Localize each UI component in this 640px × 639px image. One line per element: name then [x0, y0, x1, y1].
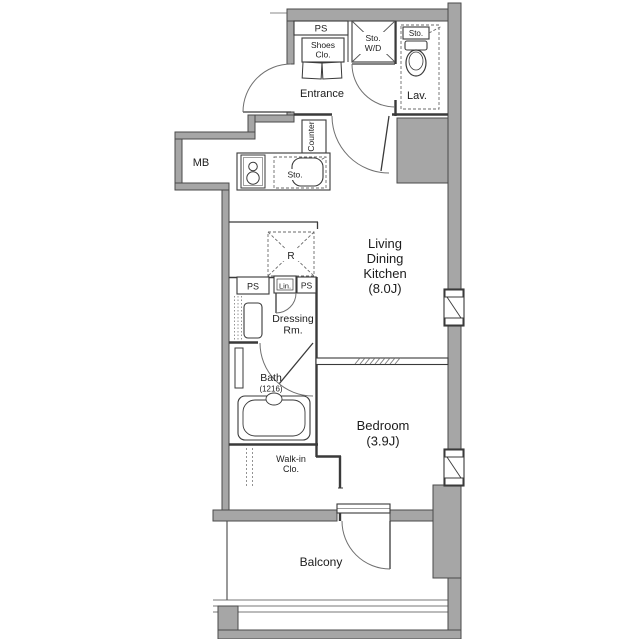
room-label-bath: Bath: [260, 372, 282, 384]
floor-plan-canvas: PS Shoes Clo. Sto. W/D Entrance Sto. Lav…: [0, 0, 640, 639]
storage-lavatory-label: Sto.: [409, 29, 423, 38]
balcony-column: [218, 606, 238, 632]
pipe-space-left-label: PS: [247, 282, 259, 292]
room-label-walkin: Clo.: [283, 464, 299, 474]
pipe-space-top-label: PS: [315, 24, 328, 35]
wall-balcony-band-left: [213, 510, 337, 521]
wall-right-mid: [448, 325, 461, 450]
kitchen-counter-label: Counter: [306, 121, 316, 151]
room-label-lavatory: Lav.: [407, 90, 427, 102]
room-label-dressing: Dressing: [272, 313, 314, 325]
room-label-ldk: Living: [368, 236, 402, 251]
room-label-bath-module: (1216): [259, 385, 282, 394]
kitchen-storage-label: Sto.: [287, 170, 302, 180]
room-label-ldk: Kitchen: [363, 266, 406, 281]
room-label-bedroom: Bedroom: [357, 418, 410, 433]
wall-top: [287, 9, 461, 21]
room-label-balcony: Balcony: [300, 555, 343, 569]
wall-right-balcony: [433, 485, 461, 578]
room-label-walkin: Walk-in: [276, 454, 306, 464]
wall-mb-top: [175, 132, 255, 139]
wall-right-upper: [448, 3, 461, 290]
room-label-entrance: Entrance: [300, 88, 344, 100]
shoes-closet-label: Shoes: [311, 40, 335, 50]
meter-box-label: MB: [193, 157, 210, 169]
wall-left: [222, 190, 229, 520]
wall-entrance-left-upper: [287, 21, 294, 64]
storage-wd-label: Sto.: [365, 33, 380, 43]
wall-block-below-lavatory: [397, 118, 448, 183]
room-label-ldk: Dining: [367, 251, 404, 266]
bathtub-faucet: [266, 393, 282, 405]
wall-mb-bottom: [175, 183, 229, 190]
room-label-bedroom-area: (3.9J): [366, 434, 399, 449]
wall-balcony-band-right: [390, 510, 433, 521]
shoes-closet-label: Clo.: [315, 50, 330, 60]
washbasin-icon: [244, 303, 262, 338]
wall-mb-left: [175, 139, 182, 190]
room-label-ldk-area: (8.0J): [368, 281, 401, 296]
storage-wd-label: W/D: [365, 43, 382, 53]
pipe-space-mid-label: PS: [301, 281, 313, 291]
toilet-tank-icon: [405, 41, 427, 50]
floor-plan-drawing: PS Shoes Clo. Sto. W/D Entrance Sto. Lav…: [0, 0, 640, 639]
wall-right-bottom: [448, 578, 461, 633]
wall-bottom-band: [218, 630, 461, 639]
room-label-dressing: Rm.: [283, 325, 302, 337]
linen-closet-label: Lin.: [279, 282, 291, 291]
refrigerator-label: R: [287, 251, 294, 262]
